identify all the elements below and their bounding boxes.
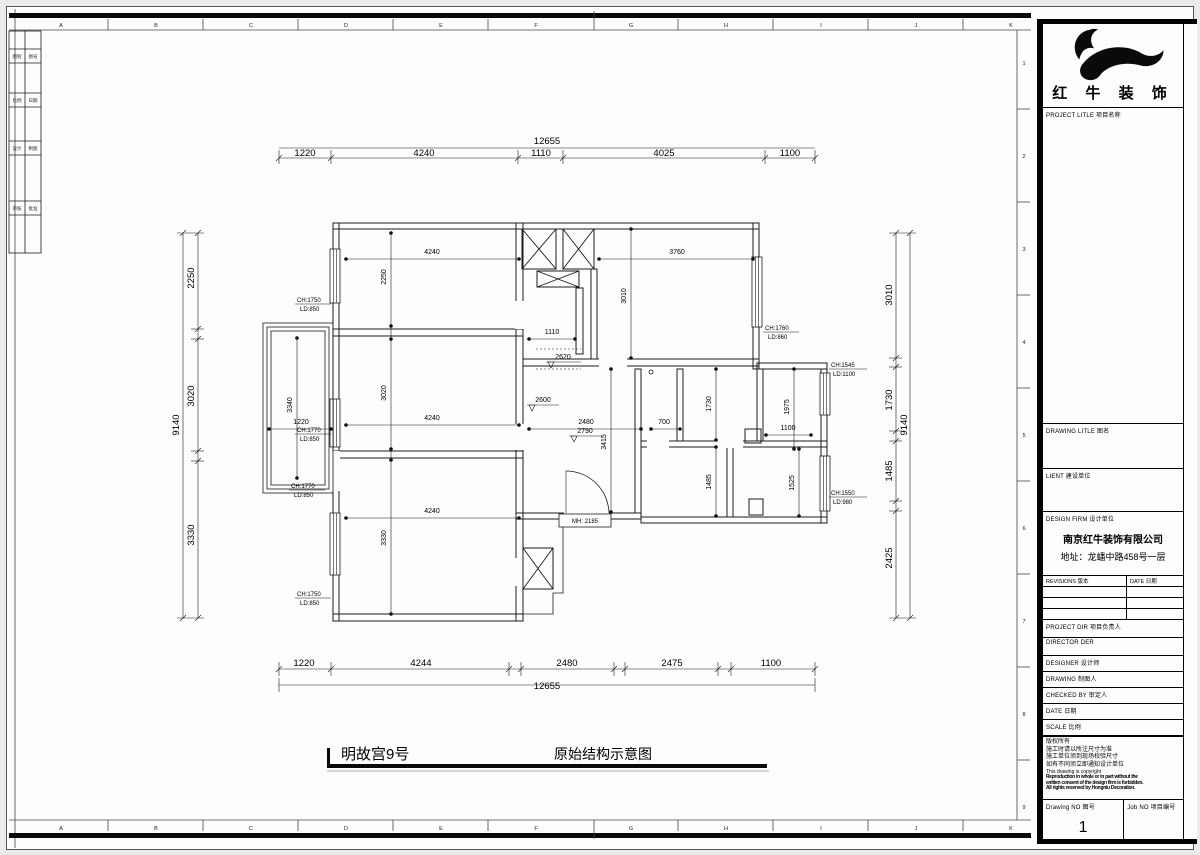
ruler-letter: J (915, 23, 918, 29)
dim-label: 1730 (884, 389, 895, 410)
note-line: 如有不同须立即通知设计单位 (1046, 762, 1180, 770)
ruler-letter: H (724, 826, 728, 832)
dim-overall-right: 9140 (899, 414, 910, 435)
ruler-letter: F (534, 826, 538, 832)
firm-address: 地址：龙蟠中路458号一层 (1043, 550, 1183, 563)
client-label: LIENT 建设单位 (1043, 469, 1183, 480)
dim-label: 4240 (424, 415, 440, 422)
revision-date-label: DATE 日期 (1127, 576, 1183, 586)
right-ruler: 1 2 3 4 5 6 7 8 9 (1017, 61, 1030, 811)
svg-text:CH:1545: CH:1545 (831, 363, 855, 369)
dim-label: 3330 (186, 524, 197, 545)
director-label: DIRECTOR DER (1043, 638, 1183, 646)
level-mark: 2790 (569, 428, 601, 442)
window-label: CH:1550LD:980 (829, 491, 867, 506)
svg-text:LD:1100: LD:1100 (833, 372, 856, 378)
screenshot: A B C D E F G H I J K A B C D E F G H I … (0, 0, 1200, 855)
dim-label: 1100 (761, 658, 781, 669)
svg-text:2600: 2600 (535, 397, 551, 404)
stamp-cell: 审核 (13, 205, 22, 212)
ruler-letter: H (724, 23, 728, 29)
dim-label: 1110 (545, 329, 560, 336)
ruler-number: 6 (1022, 526, 1025, 532)
dim-label: 700 (658, 419, 670, 426)
dim-label: 4240 (424, 508, 440, 515)
title-block: 红 牛 装 饰 PROJECT LITLE 项目名称 DRAWING LITLE… (1037, 19, 1197, 844)
dim-label: 4240 (424, 249, 440, 256)
drawing-footer: 明故宫9号 原始结构示意图 (327, 746, 769, 771)
dim-label: 2250 (186, 267, 197, 288)
ruler-letter: B (154, 826, 158, 832)
dim-label: 2480 (578, 419, 594, 426)
designer-row: DESIGNER 设计师 (1043, 656, 1183, 672)
ruler-number: 8 (1022, 712, 1025, 718)
dim-label: 1220 (293, 419, 309, 426)
dim-label: 3010 (621, 288, 628, 304)
window-labels: CH:1750LD:850 CH:1770LD:850 CH:1770LD:85… (289, 298, 867, 607)
door-height-label: MH: 2185 (572, 519, 599, 525)
dim-label: 3415 (601, 434, 608, 450)
ruler-letter: E (439, 23, 443, 29)
bull-logo (1043, 24, 1183, 82)
stamp-cell: 批准 (29, 205, 38, 212)
svg-text:2790: 2790 (577, 428, 593, 435)
ruler-number: 2 (1022, 154, 1025, 160)
director-row: DIRECTOR DER (1043, 638, 1183, 656)
level-mark: 2600 (527, 397, 559, 411)
window-label: CH:1750LD:850 (295, 592, 331, 607)
ruler-number: 7 (1022, 619, 1025, 625)
revisions-table: REVISIONS 版本 DATE 日期 (1043, 576, 1183, 620)
dim-label: 1100 (780, 425, 795, 432)
note-line: 版权所有 (1046, 739, 1180, 747)
scale-label: SCALE 比例 (1043, 720, 1183, 731)
ruler-letter: A (59, 23, 63, 29)
stamp-cell: 比例 (13, 97, 22, 104)
balcony (263, 323, 333, 493)
design-firm-label: DESIGN FIRM 设计单位 (1043, 512, 1183, 523)
revision-cell (1043, 598, 1127, 608)
project-title-label: PROJECT LITLE 项目名称 (1043, 108, 1183, 119)
dim-label: 3020 (186, 385, 197, 406)
svg-text:CH:1550: CH:1550 (831, 491, 855, 497)
note-line: 施工单位须到现场校验尺寸 (1046, 754, 1180, 762)
svg-text:2620: 2620 (555, 354, 571, 361)
project-name: 明故宫9号 (341, 746, 409, 763)
note-line: 施工时请以所注尺寸为准 (1046, 747, 1180, 755)
dim-label: 1525 (789, 475, 796, 491)
revision-cell (1043, 609, 1127, 619)
svg-text:LD:980: LD:980 (833, 500, 853, 506)
number-row: Drawing NO 图号 1 Job NO 项目编号 (1043, 800, 1183, 839)
dim-label: 4244 (410, 658, 431, 669)
svg-text:LD:860: LD:860 (768, 335, 788, 341)
drawing-by-row: DRAWING 制图人 (1043, 672, 1183, 688)
ruler-letter: D (344, 23, 348, 29)
window-label: CH:1750LD:850 (295, 298, 331, 313)
job-no-cell: Job NO 项目编号 (1124, 800, 1183, 839)
logo-section: 红 牛 装 饰 (1043, 24, 1183, 108)
dim-label: 1220 (293, 658, 314, 669)
window-label: CH:1760LD:860 (763, 326, 799, 341)
dim-label: 2475 (661, 658, 682, 669)
design-firm-section: DESIGN FIRM 设计单位 南京红牛装饰有限公司 地址：龙蟠中路458号一… (1043, 512, 1183, 576)
window (820, 373, 830, 415)
drawing-by-label: DRAWING 制图人 (1043, 672, 1183, 683)
svg-text:LD:850: LD:850 (300, 437, 320, 443)
svg-text:CH:1770: CH:1770 (291, 484, 315, 490)
date-label: DATE 日期 (1043, 704, 1183, 715)
dim-label: 3340 (287, 397, 294, 413)
dim-label: 2480 (556, 658, 577, 669)
dim-label: 3020 (381, 385, 388, 401)
window (752, 257, 762, 327)
window (820, 456, 830, 511)
page-number: 1 (1043, 819, 1123, 837)
interior-dim-labels: 4240 2250 4240 3020 4240 3330 3340 1220 … (287, 249, 796, 546)
window-label: CH:1770LD:850 (295, 428, 331, 443)
window (330, 399, 340, 447)
drawing-no-label: Drawing NO 图号 (1043, 800, 1123, 811)
date-row: DATE 日期 (1043, 704, 1183, 720)
ruler-letter: D (344, 826, 348, 832)
stamp-strip: 图别 图号 比例 日期 设计 制图 审核 批准 (9, 31, 41, 253)
svg-text:LD:850: LD:850 (300, 307, 320, 313)
drawing-no-cell: Drawing NO 图号 1 (1043, 800, 1124, 839)
svg-text:CH:1770: CH:1770 (297, 428, 321, 434)
client-section: LIENT 建设单位 (1043, 469, 1183, 512)
stamp-cell: 制图 (29, 145, 38, 152)
dim-label: 3330 (381, 530, 388, 546)
ruler-letter: I (820, 826, 822, 832)
ruler-number: 5 (1022, 433, 1025, 439)
drawing-name: 原始结构示意图 (554, 746, 652, 762)
note-fine-line: All rights reserved by Hongniu Decoratio… (1046, 786, 1180, 792)
entry-door: MH: 2185 (559, 471, 611, 527)
svg-text:CH:1750: CH:1750 (297, 592, 321, 598)
dim-label: 3760 (669, 249, 685, 256)
stamp-cell: 设计 (13, 145, 22, 152)
stamp-cell: 图号 (29, 54, 38, 60)
copyright-notes: 版权所有 施工时请以所注尺寸为准 施工单位须到现场校验尺寸 如有不同须立即通知设… (1043, 737, 1183, 800)
dim-label: 2425 (884, 547, 895, 568)
dim-label: 1485 (706, 474, 713, 490)
drawing-sheet: A B C D E F G H I J K A B C D E F G H I … (6, 6, 1194, 850)
ruler-letter: I (820, 23, 822, 29)
svg-text:LD:850: LD:850 (294, 493, 314, 499)
firm-name: 南京红牛装饰有限公司 (1043, 531, 1183, 546)
dim-label: 1100 (780, 148, 800, 159)
ruler-number: 9 (1022, 805, 1025, 811)
ruler-number: 1 (1022, 61, 1025, 67)
revision-cell (1127, 587, 1183, 597)
ruler-letter: B (154, 23, 158, 29)
ruler-letter: K (1009, 826, 1013, 832)
ruler-letter: J (915, 826, 918, 832)
checked-by-label: CHECKED BY 审定人 (1043, 688, 1183, 699)
revision-cell (1043, 587, 1127, 597)
checked-by-row: CHECKED BY 审定人 (1043, 688, 1183, 704)
project-dir-label: PROJECT DIR 项目负责人 (1043, 620, 1183, 631)
dim-overall-bottom: 12655 (534, 681, 560, 692)
project-dir-row: PROJECT DIR 项目负责人 (1043, 620, 1183, 638)
ruler-number: 4 (1022, 340, 1025, 346)
plan-canvas: A B C D E F G H I J K A B C D E F G H I … (7, 7, 1200, 855)
dim-label: 4240 (413, 148, 434, 159)
ruler-letter: C (249, 23, 253, 29)
dim-overall-left: 9140 (171, 414, 182, 435)
dim-label: 3010 (884, 284, 895, 305)
dim-label: 4025 (653, 148, 674, 159)
dim-label: 1485 (884, 460, 895, 481)
svg-text:LD:850: LD:850 (300, 601, 320, 607)
window (330, 513, 340, 575)
revision-cell (1127, 609, 1183, 619)
ruler-letter: A (59, 826, 63, 832)
ruler-letter: E (439, 826, 443, 832)
stamp-cell: 图别 (13, 53, 22, 60)
dim-label: 2250 (381, 269, 388, 285)
svg-text:CH:1750: CH:1750 (297, 298, 321, 304)
outer-dims: 12655 1220 4240 1110 4025 1100 (171, 136, 916, 692)
project-title-section: PROJECT LITLE 项目名称 (1043, 108, 1183, 424)
svg-text:CH:1760: CH:1760 (765, 326, 789, 332)
job-no-label: Job NO 项目编号 (1124, 800, 1183, 811)
dim-overall-top: 12655 (534, 136, 560, 147)
ruler-letter: G (629, 826, 633, 832)
ruler-letter: C (249, 826, 253, 832)
ruler-letter: F (534, 23, 538, 29)
drawing-title-label: DRAWING LITLE 图名 (1043, 424, 1183, 435)
window-label: CH:1545LD:1100 (829, 363, 867, 378)
revision-cell (1127, 598, 1183, 608)
scale-row: SCALE 比例 (1043, 720, 1183, 737)
ruler-number: 3 (1022, 247, 1025, 253)
dim-label: 1220 (294, 148, 315, 159)
dim-label: 1975 (784, 399, 791, 415)
window-label: CH:1770LD:850 (289, 484, 325, 499)
stamp-cell: 日期 (29, 98, 38, 104)
window (330, 249, 340, 303)
brand-name: 红 牛 装 饰 (1043, 82, 1183, 103)
revisions-label: REVISIONS 版本 (1043, 576, 1127, 586)
dim-label: 1110 (531, 148, 551, 159)
ruler-letter: K (1009, 23, 1013, 29)
ruler-letter: G (629, 23, 633, 29)
dim-label: 1730 (706, 396, 713, 412)
designer-label: DESIGNER 设计师 (1043, 656, 1183, 667)
drawing-title-section: DRAWING LITLE 图名 (1043, 424, 1183, 469)
